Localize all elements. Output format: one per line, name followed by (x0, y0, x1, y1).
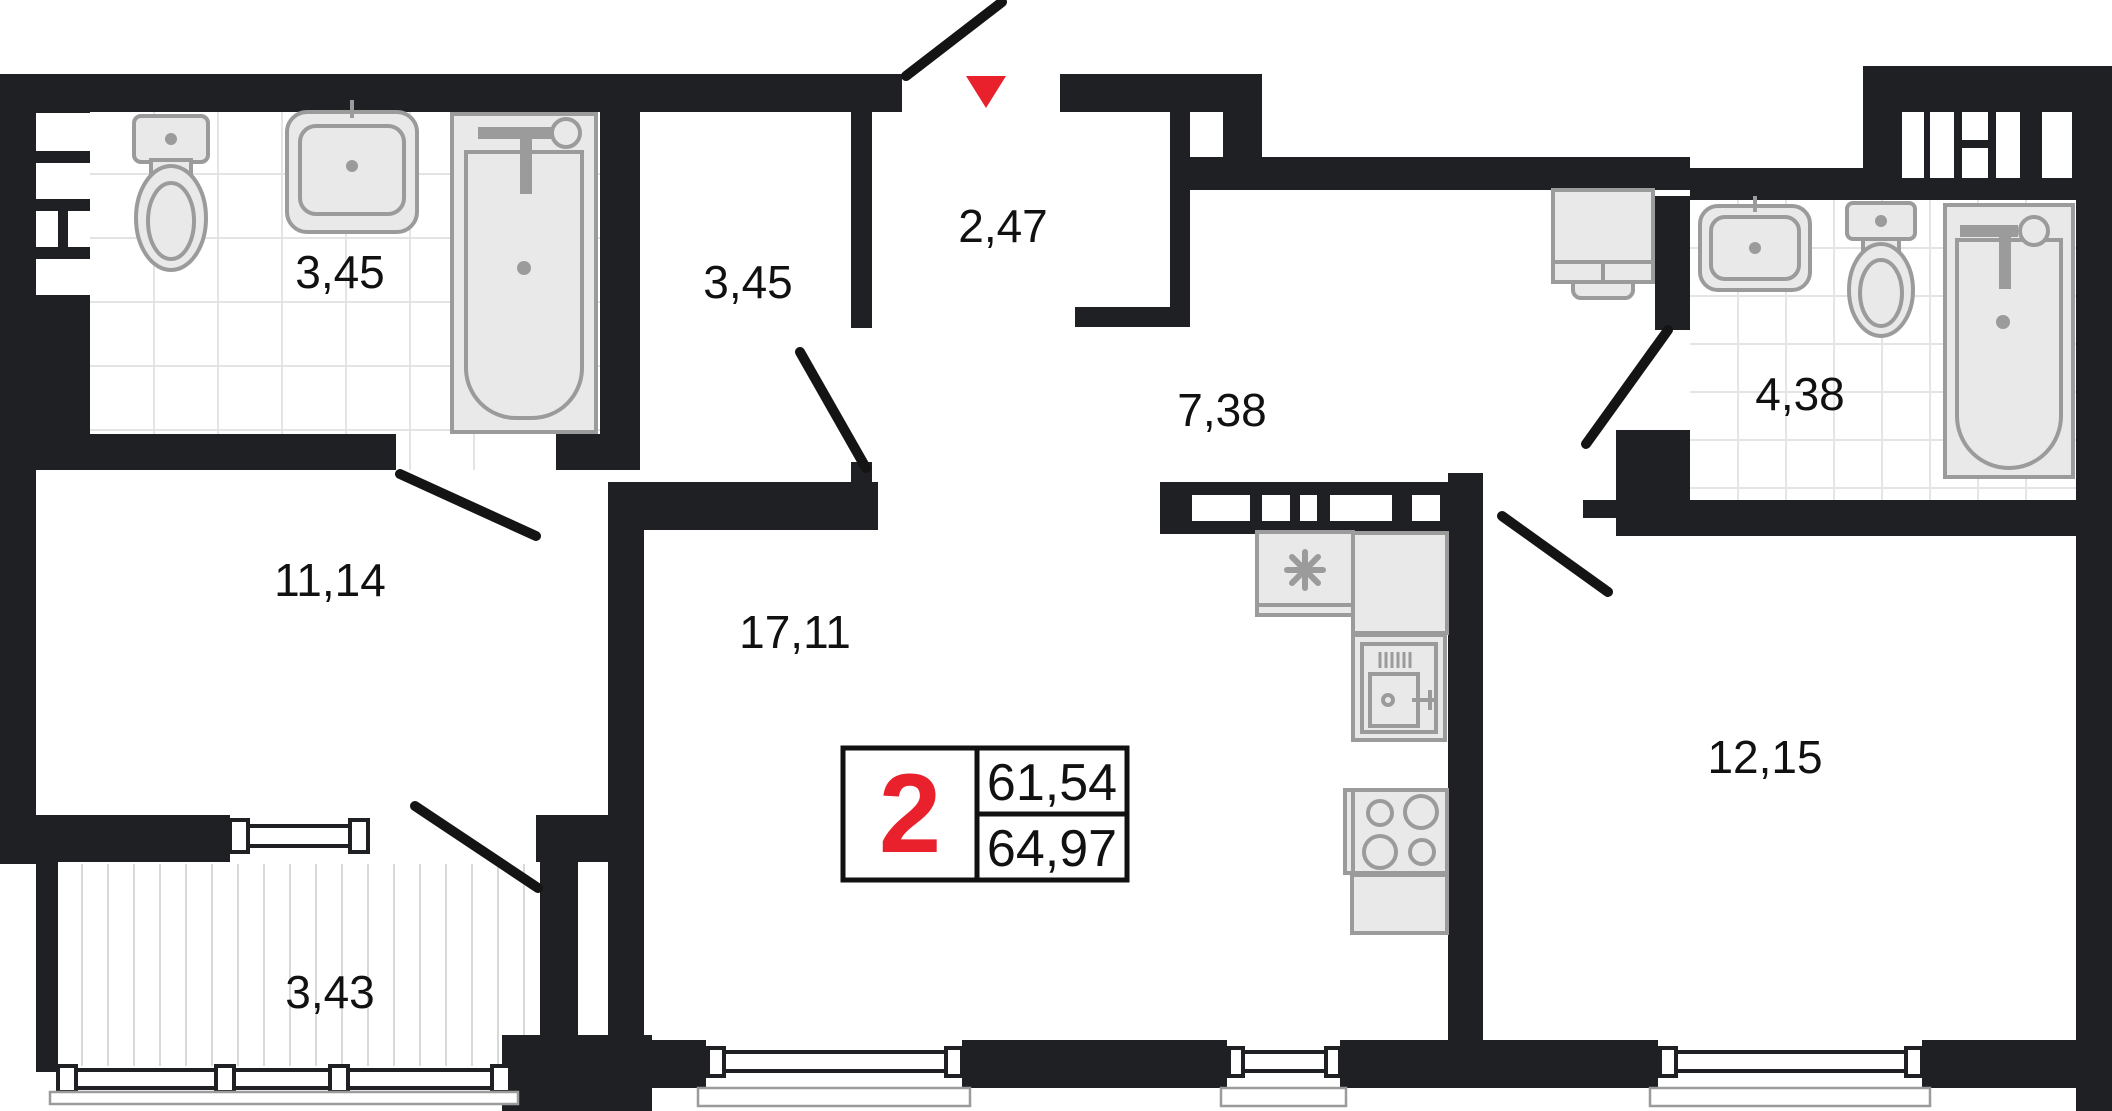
toilet-icon (134, 116, 208, 270)
room-area-label: 12,15 (1707, 731, 1822, 783)
snowflake-icon (1287, 552, 1323, 588)
window-sill (698, 1088, 970, 1106)
bathtub-icon (452, 114, 596, 432)
apartment-badge: 2 61,54 64,97 (843, 748, 1127, 880)
room-area-label: 3,45 (703, 256, 793, 308)
bathtub-icon (1945, 205, 2073, 477)
window (708, 1048, 962, 1076)
balcony-glazing (58, 1066, 510, 1092)
badge-living-area: 61,54 (987, 754, 1117, 812)
door-swing-balcony (415, 806, 538, 888)
door-swing-bathroom-2 (1586, 330, 1668, 444)
door-swing-closet (800, 352, 866, 468)
floor-plan-canvas: 3,45 3,45 2,47 7,38 4,38 11,14 17,11 12,… (0, 0, 2112, 1111)
bathroom-2-fixtures (1700, 196, 2073, 477)
washing-machine-icon (1553, 190, 1653, 298)
badge-total-area: 64,97 (987, 820, 1117, 878)
fridge-counter-icon (1257, 532, 1353, 615)
kitchen-fixtures (1257, 532, 1447, 933)
entrance-marker-icon (966, 76, 1006, 108)
kitchen-sink-icon (1353, 635, 1445, 740)
window-sill (1650, 1088, 1930, 1106)
room-area-label: 17,11 (739, 606, 851, 658)
room-area-label: 2,47 (958, 200, 1048, 252)
counter-icon (1353, 533, 1447, 633)
door-swing-bedroom (1502, 516, 1608, 592)
cooktop-icon (1345, 790, 1447, 873)
room-area-label: 3,45 (295, 246, 385, 298)
sink-icon (287, 100, 417, 232)
room-area-label: 11,14 (274, 554, 386, 606)
door-swing-bathroom-1 (400, 474, 536, 536)
room-area-label: 4,38 (1755, 368, 1845, 420)
door-swing-entrance (906, 2, 1002, 76)
badge-rooms-count: 2 (879, 751, 941, 876)
window-sill (1221, 1088, 1346, 1106)
window (1660, 1048, 1922, 1076)
balcony-decking (82, 864, 524, 1066)
window (230, 820, 368, 852)
sink-icon (1700, 196, 1810, 290)
floor-plan: 3,45 3,45 2,47 7,38 4,38 11,14 17,11 12,… (0, 0, 2112, 1111)
counter-icon (1352, 875, 1447, 933)
toilet-icon (1847, 203, 1915, 336)
room-area-label: 7,38 (1177, 384, 1267, 436)
room-area-label: 3,43 (285, 966, 375, 1018)
balcony-sill (50, 1092, 518, 1104)
window (1229, 1048, 1340, 1076)
